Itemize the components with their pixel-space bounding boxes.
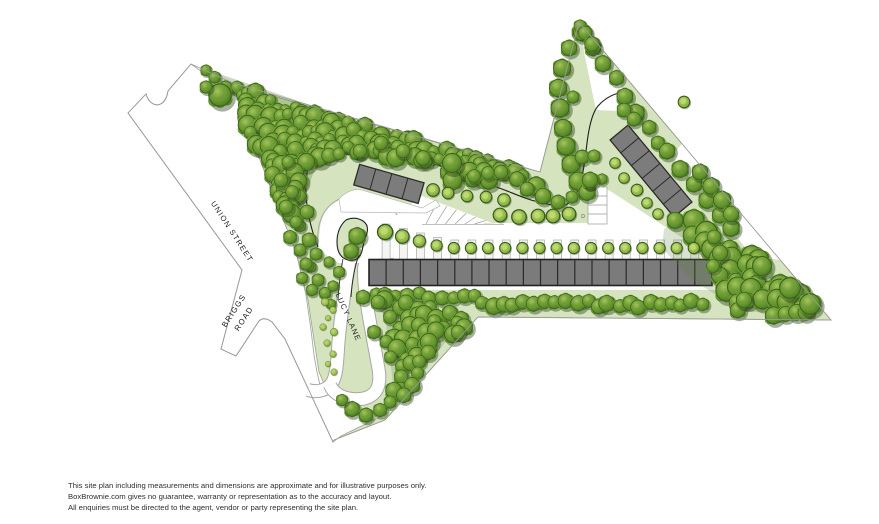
svg-text:This site plan including measu: This site plan including measurements an… [68,481,426,490]
svg-text:BoxBrownie.com gives no guaran: BoxBrownie.com gives no guarantee, warra… [68,492,391,501]
svg-text:All enquiries must be directed: All enquiries must be directed to the ag… [68,503,358,512]
